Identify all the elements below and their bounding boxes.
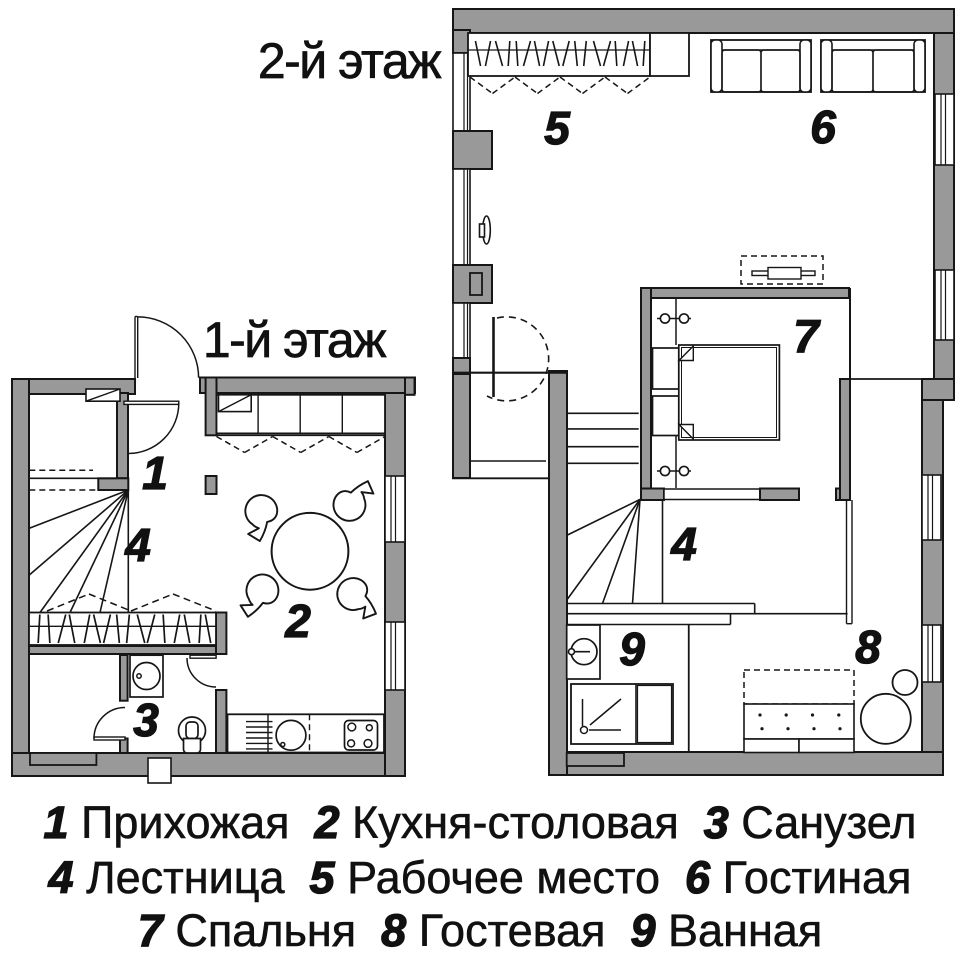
svg-text:6: 6 [810, 101, 836, 153]
svg-text:1: 1 [142, 447, 168, 499]
svg-text:3: 3 [133, 694, 159, 746]
svg-text:9: 9 [619, 623, 645, 675]
svg-text:4: 4 [670, 518, 697, 570]
svg-text:7 Спальня 8 Гостевая 9 Ванна: 7 Спальня 8 Гостевая 9 Ванная [138, 905, 822, 956]
svg-text:4: 4 [124, 519, 151, 571]
svg-text:2-й этаж: 2-й этаж [258, 33, 442, 89]
svg-text:1-й этаж: 1-й этаж [203, 312, 387, 368]
svg-text:7: 7 [793, 310, 821, 362]
svg-text:2: 2 [284, 595, 311, 647]
svg-text:1 Прихожая 2 Кухня-столовая: 1 Прихожая 2 Кухня-столовая 3 Санузел [43, 797, 916, 848]
svg-text:5: 5 [544, 102, 571, 154]
svg-text:8: 8 [855, 621, 881, 673]
svg-text:4 Лестница 5 Рабочее место 6: 4 Лестница 5 Рабочее место 6 Гостиная [48, 852, 912, 903]
